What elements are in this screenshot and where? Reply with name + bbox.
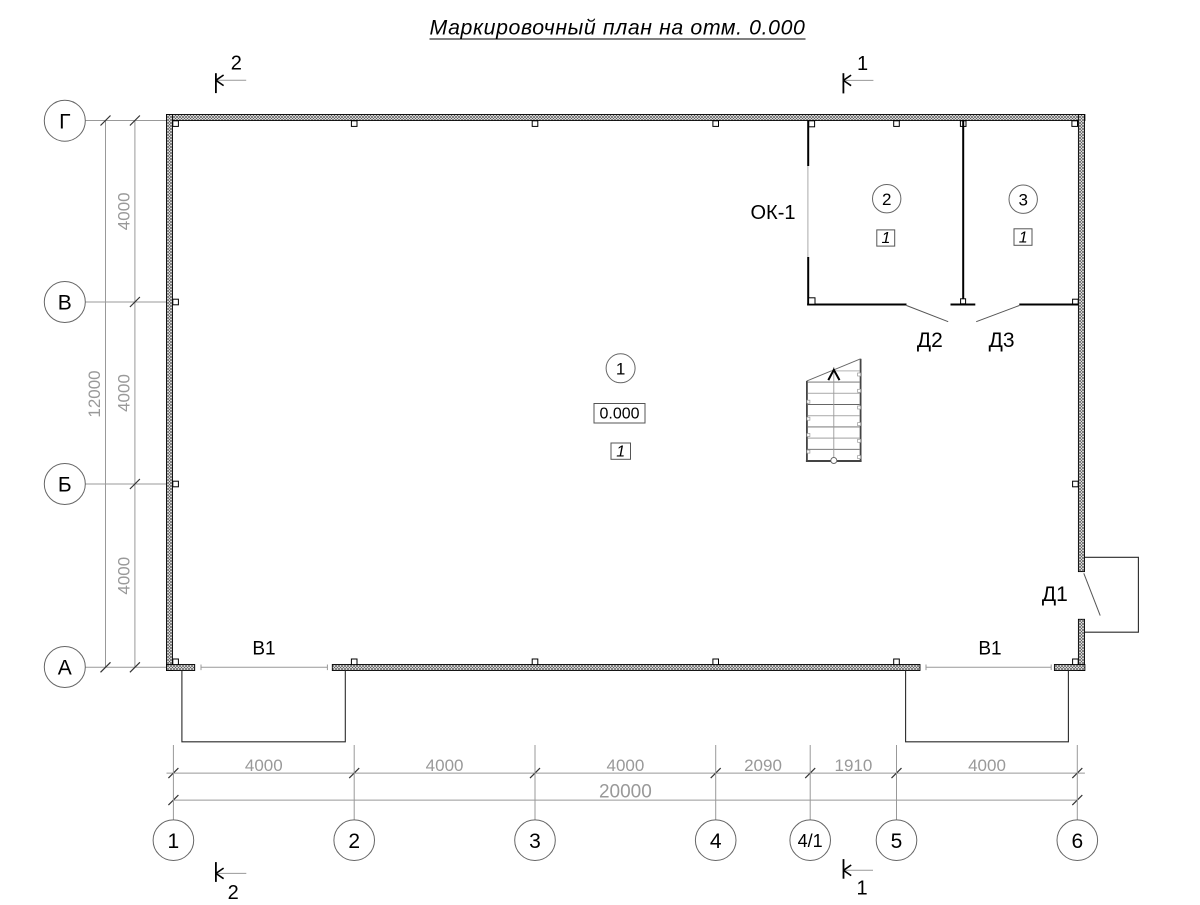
svg-text:В1: В1: [252, 639, 275, 660]
svg-text:12000: 12000: [85, 370, 104, 417]
svg-text:А: А: [58, 657, 72, 680]
svg-text:Б: Б: [58, 474, 72, 497]
svg-text:1: 1: [857, 53, 868, 75]
svg-text:4000: 4000: [115, 374, 134, 412]
svg-text:Д2: Д2: [917, 329, 943, 352]
svg-text:1: 1: [168, 830, 180, 853]
svg-text:Д1: Д1: [1042, 583, 1068, 606]
svg-text:3: 3: [529, 830, 541, 853]
svg-text:3: 3: [1018, 190, 1027, 209]
svg-text:1910: 1910: [834, 756, 872, 775]
svg-text:2: 2: [231, 53, 242, 75]
svg-text:4000: 4000: [245, 756, 283, 775]
svg-text:4000: 4000: [606, 756, 644, 775]
svg-text:2090: 2090: [744, 756, 782, 775]
svg-text:В1: В1: [978, 639, 1001, 660]
svg-text:5: 5: [891, 830, 903, 853]
svg-text:2: 2: [882, 190, 891, 209]
svg-text:4/1: 4/1: [798, 831, 823, 851]
svg-text:Маркировочный план на отм. 0.0: Маркировочный план на отм. 0.000: [430, 15, 806, 39]
svg-text:ОК-1: ОК-1: [751, 202, 796, 224]
svg-text:20000: 20000: [599, 782, 652, 803]
svg-text:4000: 4000: [115, 557, 134, 595]
svg-text:В: В: [58, 292, 72, 315]
svg-text:Г: Г: [59, 110, 70, 133]
svg-text:1: 1: [1019, 229, 1028, 246]
svg-text:1: 1: [856, 878, 867, 900]
svg-text:2: 2: [348, 830, 360, 853]
svg-text:Д3: Д3: [989, 329, 1015, 352]
svg-text:1: 1: [881, 230, 890, 247]
svg-text:4000: 4000: [115, 192, 134, 230]
svg-text:1: 1: [616, 359, 625, 378]
svg-text:4000: 4000: [968, 756, 1006, 775]
svg-text:1: 1: [616, 443, 625, 460]
svg-text:2: 2: [228, 882, 239, 900]
svg-text:0.000: 0.000: [599, 405, 639, 422]
svg-text:6: 6: [1071, 830, 1083, 853]
svg-text:4: 4: [710, 830, 722, 853]
svg-text:4000: 4000: [426, 756, 464, 775]
